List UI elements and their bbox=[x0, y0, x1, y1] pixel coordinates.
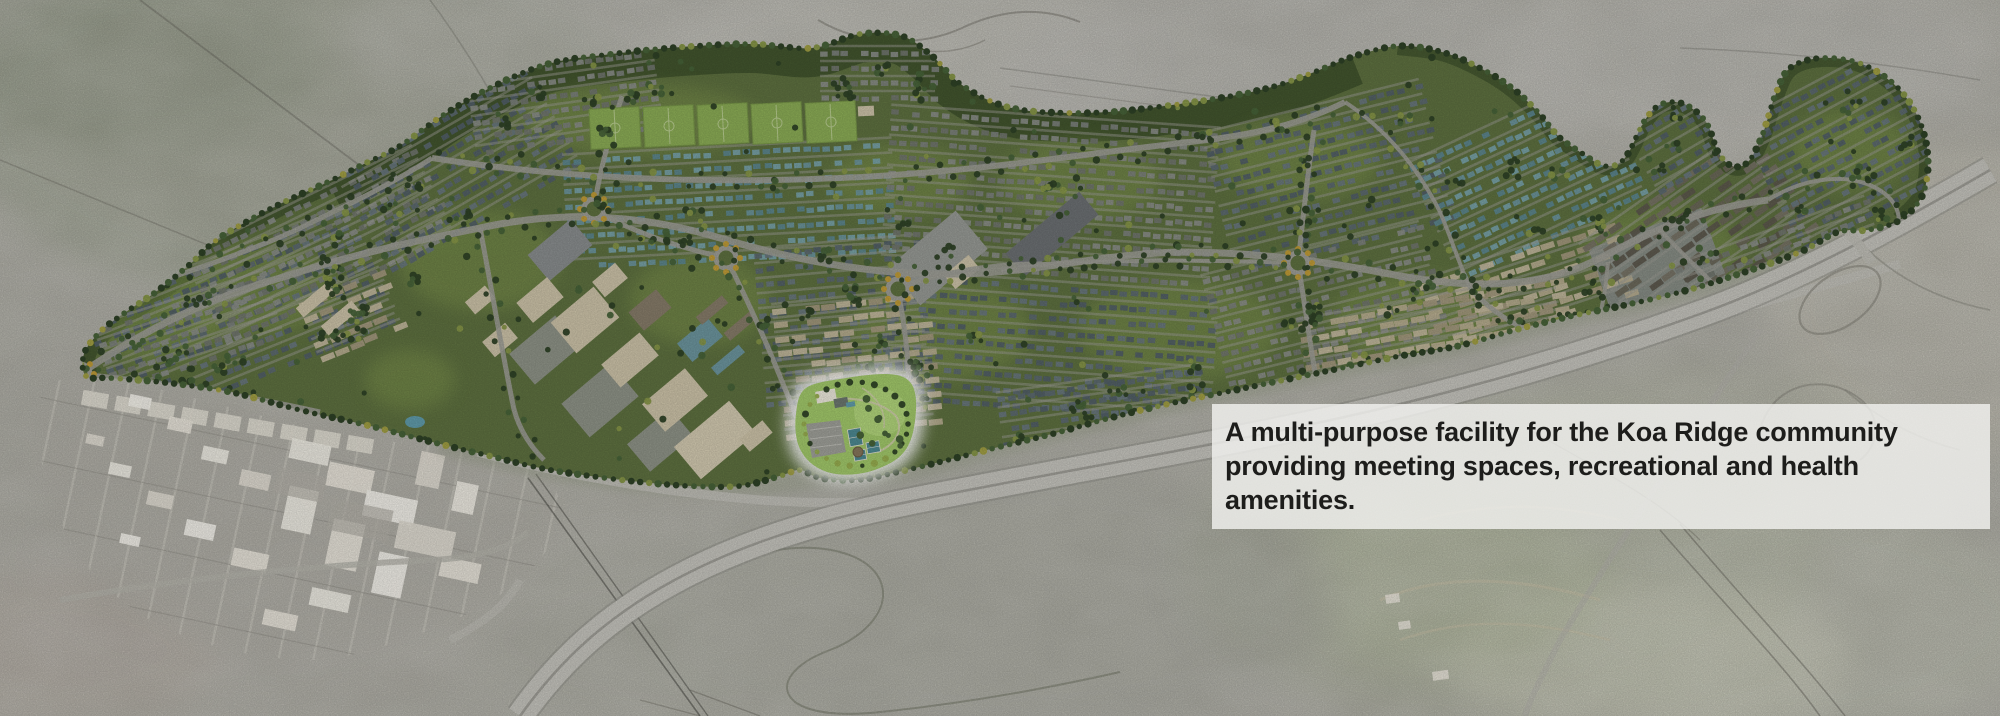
koa-ridge-masterplan-view: A multi-purpose facility for the Koa Rid… bbox=[0, 0, 2000, 716]
caption-overlay: A multi-purpose facility for the Koa Rid… bbox=[1212, 404, 1990, 529]
caption-line-2: providing meeting spaces, recreational a… bbox=[1225, 449, 1977, 483]
caption-line-1: A multi-purpose facility for the Koa Rid… bbox=[1225, 415, 1977, 449]
caption-line-3: amenities. bbox=[1225, 483, 1977, 517]
masterplan-aerial-map bbox=[0, 0, 2000, 716]
photo-grain bbox=[0, 0, 2000, 716]
